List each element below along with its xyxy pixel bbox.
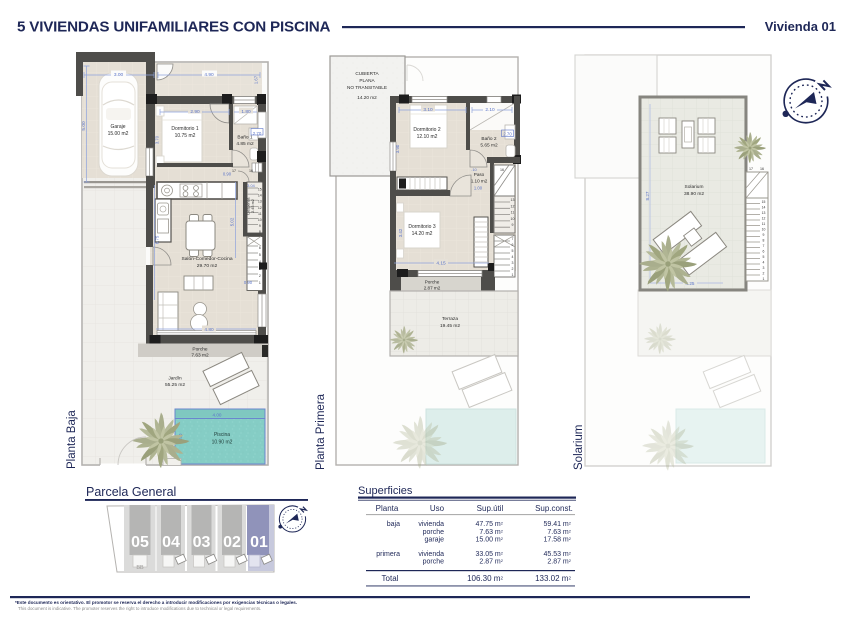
svg-text:porche: porche — [423, 559, 445, 566]
svg-text:Sup.const.: Sup.const. — [535, 504, 573, 513]
svg-text:2: 2 — [763, 272, 765, 276]
svg-text:6: 6 — [763, 250, 765, 254]
svg-text:04: 04 — [162, 534, 180, 551]
svg-text:garaje: garaje — [425, 537, 445, 544]
svg-text:3.70: 3.70 — [155, 135, 160, 144]
svg-text:Superficies: Superficies — [358, 485, 413, 497]
svg-text:133.02 m2: 133.02 m2 — [535, 574, 571, 583]
svg-text:17.58 m2: 17.58 m2 — [543, 536, 571, 544]
svg-text:03: 03 — [193, 534, 211, 551]
svg-text:2.87 m2: 2.87 m2 — [424, 286, 441, 291]
svg-text:3.00: 3.00 — [114, 72, 124, 78]
svg-text:vivienda: vivienda — [418, 521, 444, 528]
svg-text:7.63 m2: 7.63 m2 — [547, 529, 571, 537]
svg-text:17: 17 — [749, 167, 753, 171]
svg-text:12.10 m2: 12.10 m2 — [417, 134, 438, 140]
svg-text:4.85 m2: 4.85 m2 — [236, 141, 254, 147]
svg-text:1: 1 — [512, 273, 514, 277]
svg-text:13: 13 — [511, 198, 515, 202]
svg-text:55.25 m2: 55.25 m2 — [165, 382, 185, 388]
svg-text:6: 6 — [512, 243, 514, 247]
svg-text:5 VIVIENDAS UNIFAMILIARES CON: 5 VIVIENDAS UNIFAMILIARES CON PISCINA — [17, 19, 330, 36]
svg-text:Terraza: Terraza — [442, 316, 458, 322]
svg-text:05: 05 — [131, 534, 149, 551]
svg-text:Total: Total — [382, 574, 399, 583]
svg-text:3: 3 — [512, 261, 514, 265]
svg-text:3: 3 — [763, 266, 765, 270]
svg-text:15: 15 — [258, 188, 262, 192]
svg-text:5: 5 — [259, 253, 261, 257]
svg-text:Salón-Comedor-Cocina: Salón-Comedor-Cocina — [181, 256, 232, 262]
svg-text:Vivienda 01: Vivienda 01 — [765, 19, 836, 34]
svg-text:19.45 m2: 19.45 m2 — [440, 323, 460, 329]
svg-text:Baño 1: Baño 1 — [237, 135, 253, 141]
svg-text:01: 01 — [250, 534, 268, 551]
svg-text:9: 9 — [259, 224, 261, 228]
svg-text:Dormitorio 3: Dormitorio 3 — [408, 224, 435, 230]
svg-text:8.27: 8.27 — [645, 191, 650, 200]
svg-text:15: 15 — [762, 200, 766, 204]
svg-text:2.87 m2: 2.87 m2 — [547, 558, 571, 566]
svg-text:11: 11 — [511, 211, 515, 215]
svg-text:4: 4 — [512, 255, 514, 259]
svg-text:Paso: Paso — [474, 172, 485, 177]
svg-text:4.00: 4.00 — [213, 413, 222, 418]
svg-text:1.80: 1.80 — [241, 109, 251, 115]
svg-text:porche: porche — [423, 529, 445, 536]
svg-text:16: 16 — [760, 167, 764, 171]
svg-text:12: 12 — [258, 206, 262, 210]
svg-text:8: 8 — [763, 239, 765, 243]
svg-text:1: 1 — [259, 281, 261, 285]
svg-text:10.90 m2: 10.90 m2 — [212, 440, 233, 446]
svg-text:15.00 m2: 15.00 m2 — [475, 536, 503, 544]
svg-text:2.10: 2.10 — [485, 107, 495, 113]
svg-text:59.41 m2: 59.41 m2 — [543, 521, 571, 529]
svg-text:1.67: 1.67 — [254, 75, 259, 84]
svg-text:7: 7 — [763, 244, 765, 248]
svg-text:16: 16 — [500, 168, 504, 172]
svg-text:33.05 m2: 33.05 m2 — [475, 551, 503, 559]
svg-text:Dormitorio 2: Dormitorio 2 — [413, 127, 440, 133]
svg-text:Dormitorio 1: Dormitorio 1 — [171, 126, 198, 132]
svg-text:2: 2 — [259, 274, 261, 278]
svg-text:14.20 m2: 14.20 m2 — [412, 231, 433, 237]
svg-text:primera: primera — [376, 551, 400, 558]
svg-text:Porche: Porche — [425, 280, 440, 285]
svg-text:13: 13 — [258, 200, 262, 204]
svg-text:5.65 m2: 5.65 m2 — [480, 143, 498, 149]
svg-text:12: 12 — [762, 217, 766, 221]
svg-text:15.00 m2: 15.00 m2 — [108, 131, 129, 137]
svg-text:47.75 m2: 47.75 m2 — [475, 521, 503, 529]
svg-text:5: 5 — [512, 249, 514, 253]
svg-text:3.04: 3.04 — [247, 184, 254, 188]
svg-text:10: 10 — [258, 218, 262, 222]
svg-text:2.70: 2.70 — [253, 131, 262, 136]
svg-text:12: 12 — [511, 204, 515, 208]
svg-text:Planta: Planta — [376, 504, 399, 513]
svg-text:4.90: 4.90 — [204, 72, 214, 78]
svg-text:Garaje: Garaje — [110, 124, 125, 130]
svg-text:17: 17 — [232, 169, 236, 173]
svg-text:BB: BB — [136, 565, 144, 571]
svg-text:Porche: Porche — [192, 347, 208, 353]
svg-text:1.10 m2: 1.10 m2 — [471, 179, 488, 184]
svg-text:10: 10 — [762, 228, 766, 232]
svg-text:3.90: 3.90 — [395, 144, 400, 153]
svg-text:9: 9 — [763, 233, 765, 237]
svg-text:11: 11 — [762, 222, 766, 226]
svg-text:9: 9 — [512, 223, 514, 227]
svg-text:4.80: 4.80 — [204, 327, 214, 333]
svg-text:Baño 2: Baño 2 — [481, 136, 497, 142]
svg-text:CUBIERTA: CUBIERTA — [355, 71, 379, 76]
svg-text:*Este documento es orientativo: *Este documento es orientativo. El promo… — [15, 600, 297, 605]
svg-text:38.90 m2: 38.90 m2 — [684, 191, 704, 197]
svg-text:4: 4 — [763, 261, 765, 265]
svg-text:14: 14 — [258, 194, 262, 198]
svg-text:14.20 m2: 14.20 m2 — [357, 95, 377, 100]
svg-text:Solarium: Solarium — [685, 184, 704, 190]
svg-text:2.90: 2.90 — [190, 109, 200, 115]
svg-text:Uso: Uso — [430, 504, 445, 513]
svg-text:7.63 m2: 7.63 m2 — [191, 353, 209, 359]
svg-text:2.70: 2.70 — [503, 131, 512, 136]
svg-text:0.90: 0.90 — [244, 280, 253, 285]
svg-text:Sup.útil: Sup.útil — [477, 504, 504, 513]
svg-text:2.87 m2: 2.87 m2 — [479, 558, 503, 566]
svg-text:1.00: 1.00 — [474, 186, 483, 191]
svg-text:6: 6 — [259, 246, 261, 250]
svg-text:PLANA: PLANA — [359, 78, 375, 83]
svg-text:5.02: 5.02 — [230, 217, 235, 226]
svg-text:baja: baja — [387, 521, 400, 528]
svg-text:2: 2 — [512, 267, 514, 271]
svg-text:16: 16 — [249, 169, 253, 173]
svg-text:2.45 m2: 2.45 m2 — [251, 199, 255, 213]
svg-text:3.42: 3.42 — [398, 228, 403, 237]
svg-text:.10: .10 — [471, 167, 477, 172]
svg-text:02: 02 — [223, 534, 241, 551]
svg-text:Planta Primera: Planta Primera — [315, 393, 327, 470]
svg-text:7: 7 — [512, 237, 514, 241]
svg-text:5.00: 5.00 — [81, 121, 87, 131]
svg-text:7.63 m2: 7.63 m2 — [479, 529, 503, 537]
svg-text:NO TRANSITABLE: NO TRANSITABLE — [347, 85, 387, 90]
svg-text:29.70 m2: 29.70 m2 — [197, 263, 218, 269]
svg-text:vivienda: vivienda — [418, 551, 444, 558]
svg-text:Jardín: Jardín — [168, 376, 182, 382]
svg-text:13: 13 — [762, 211, 766, 215]
svg-text:This document is indicative. T: This document is indicative. The promote… — [18, 606, 261, 611]
svg-text:Solarium: Solarium — [573, 425, 585, 470]
svg-text:6.75: 6.75 — [155, 235, 160, 244]
svg-text:10.75 m2: 10.75 m2 — [175, 133, 196, 139]
svg-text:10: 10 — [511, 217, 515, 221]
svg-text:1: 1 — [763, 277, 765, 281]
svg-text:4.15: 4.15 — [436, 261, 446, 267]
svg-text:11: 11 — [258, 212, 262, 216]
svg-text:14: 14 — [762, 206, 766, 210]
svg-text:Planta Baja: Planta Baja — [66, 410, 78, 469]
svg-text:3.10: 3.10 — [423, 107, 433, 113]
svg-text:106.30 m2: 106.30 m2 — [467, 574, 503, 583]
svg-text:Piscina: Piscina — [214, 432, 230, 438]
svg-text:0.90: 0.90 — [223, 172, 232, 177]
svg-text:45.53 m2: 45.53 m2 — [543, 551, 571, 559]
svg-text:5: 5 — [763, 255, 765, 259]
svg-text:Parcela General: Parcela General — [86, 485, 176, 499]
